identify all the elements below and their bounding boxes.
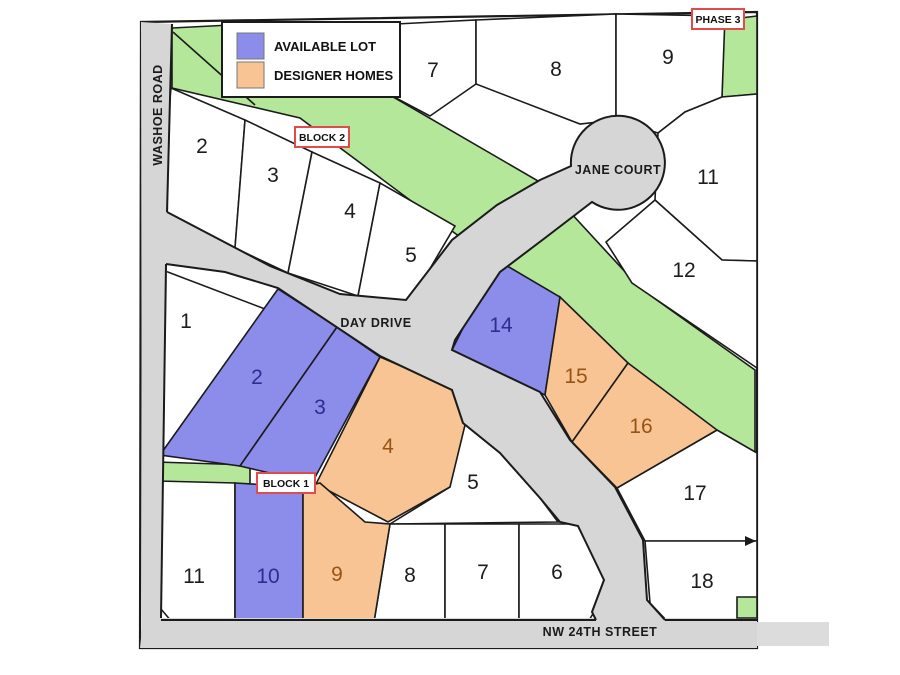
washoe-road-label: WASHOE ROAD <box>151 64 165 165</box>
lot-number: 8 <box>404 564 416 587</box>
lot-number: 1 <box>180 310 192 333</box>
lot-number-designer: 16 <box>629 415 652 438</box>
jane-court-label: JANE COURT <box>575 163 661 177</box>
legend-designer-label: DESIGNER HOMES <box>274 68 394 83</box>
lot-number-designer: 4 <box>382 435 394 458</box>
lot-number-designer: 9 <box>331 563 343 586</box>
plat-map-page: WASHOE ROAD DAY DRIVE JANE COURT NW 24TH… <box>0 0 900 675</box>
block1-badge-label: BLOCK 1 <box>263 478 309 490</box>
lot-number: 6 <box>551 561 563 584</box>
lot-number: 8 <box>550 58 562 81</box>
lot-number: 11 <box>183 565 205 588</box>
nw-24th-street-label: NW 24TH STREET <box>543 625 658 639</box>
legend: AVAILABLE LOT DESIGNER HOMES <box>222 22 400 97</box>
available-lot-swatch-icon <box>237 33 264 59</box>
lot-number: 9 <box>662 46 674 69</box>
lot-number-available: 14 <box>489 314 513 337</box>
lot-number: 3 <box>267 164 279 187</box>
lot-number: 7 <box>477 561 489 584</box>
green-square-lot18 <box>737 597 757 618</box>
lot-number: 12 <box>672 259 695 282</box>
lot-number-available: 10 <box>256 565 279 588</box>
day-drive-label: DAY DRIVE <box>340 316 411 330</box>
lot-number: 5 <box>405 244 417 267</box>
lot-10-available <box>235 483 303 622</box>
phase3-badge-label: PHASE 3 <box>696 14 741 26</box>
plat-map: WASHOE ROAD DAY DRIVE JANE COURT NW 24TH… <box>0 0 900 675</box>
lot-number: 5 <box>467 471 479 494</box>
block2-badge-label: BLOCK 2 <box>299 132 345 144</box>
designer-homes-swatch-icon <box>237 62 264 88</box>
street-continuation <box>757 622 829 646</box>
legend-available-label: AVAILABLE LOT <box>274 39 376 54</box>
lot-number: 17 <box>683 482 706 505</box>
lot-number: 11 <box>697 166 719 189</box>
lot-number: 18 <box>690 570 713 593</box>
lot-number: 4 <box>344 200 356 223</box>
lot-number-available: 3 <box>314 396 326 419</box>
lot-number: 7 <box>427 59 439 82</box>
lot-11-bottom <box>155 481 235 622</box>
lot-number: 2 <box>196 135 208 158</box>
lot-number-designer: 15 <box>564 365 587 388</box>
lot-number-available: 2 <box>251 366 263 389</box>
